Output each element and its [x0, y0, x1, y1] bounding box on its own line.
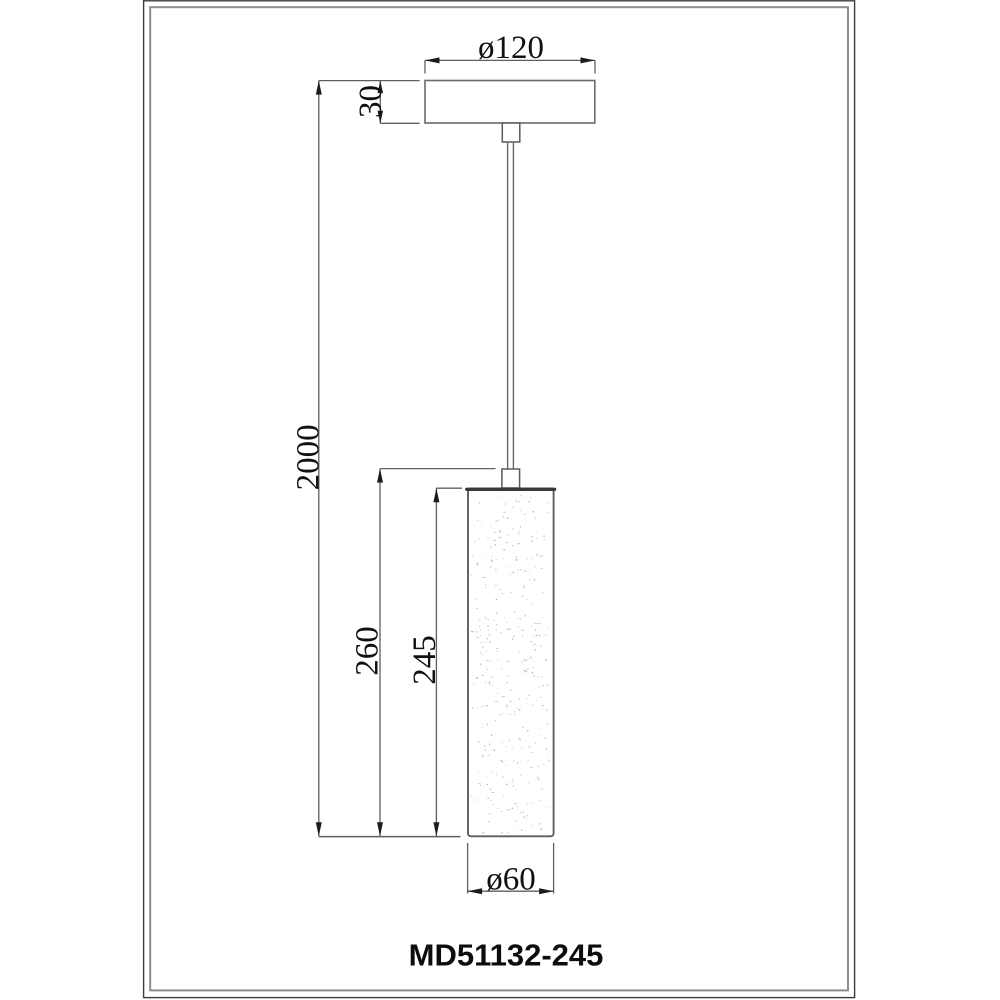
svg-text:30: 30 — [353, 85, 389, 118]
svg-text:245: 245 — [407, 635, 443, 685]
svg-text:ø120: ø120 — [478, 30, 544, 66]
svg-text:ø60: ø60 — [486, 862, 536, 898]
svg-text:MD51132-245: MD51132-245 — [409, 938, 604, 973]
svg-text:2000: 2000 — [290, 424, 326, 490]
svg-text:260: 260 — [349, 626, 385, 676]
